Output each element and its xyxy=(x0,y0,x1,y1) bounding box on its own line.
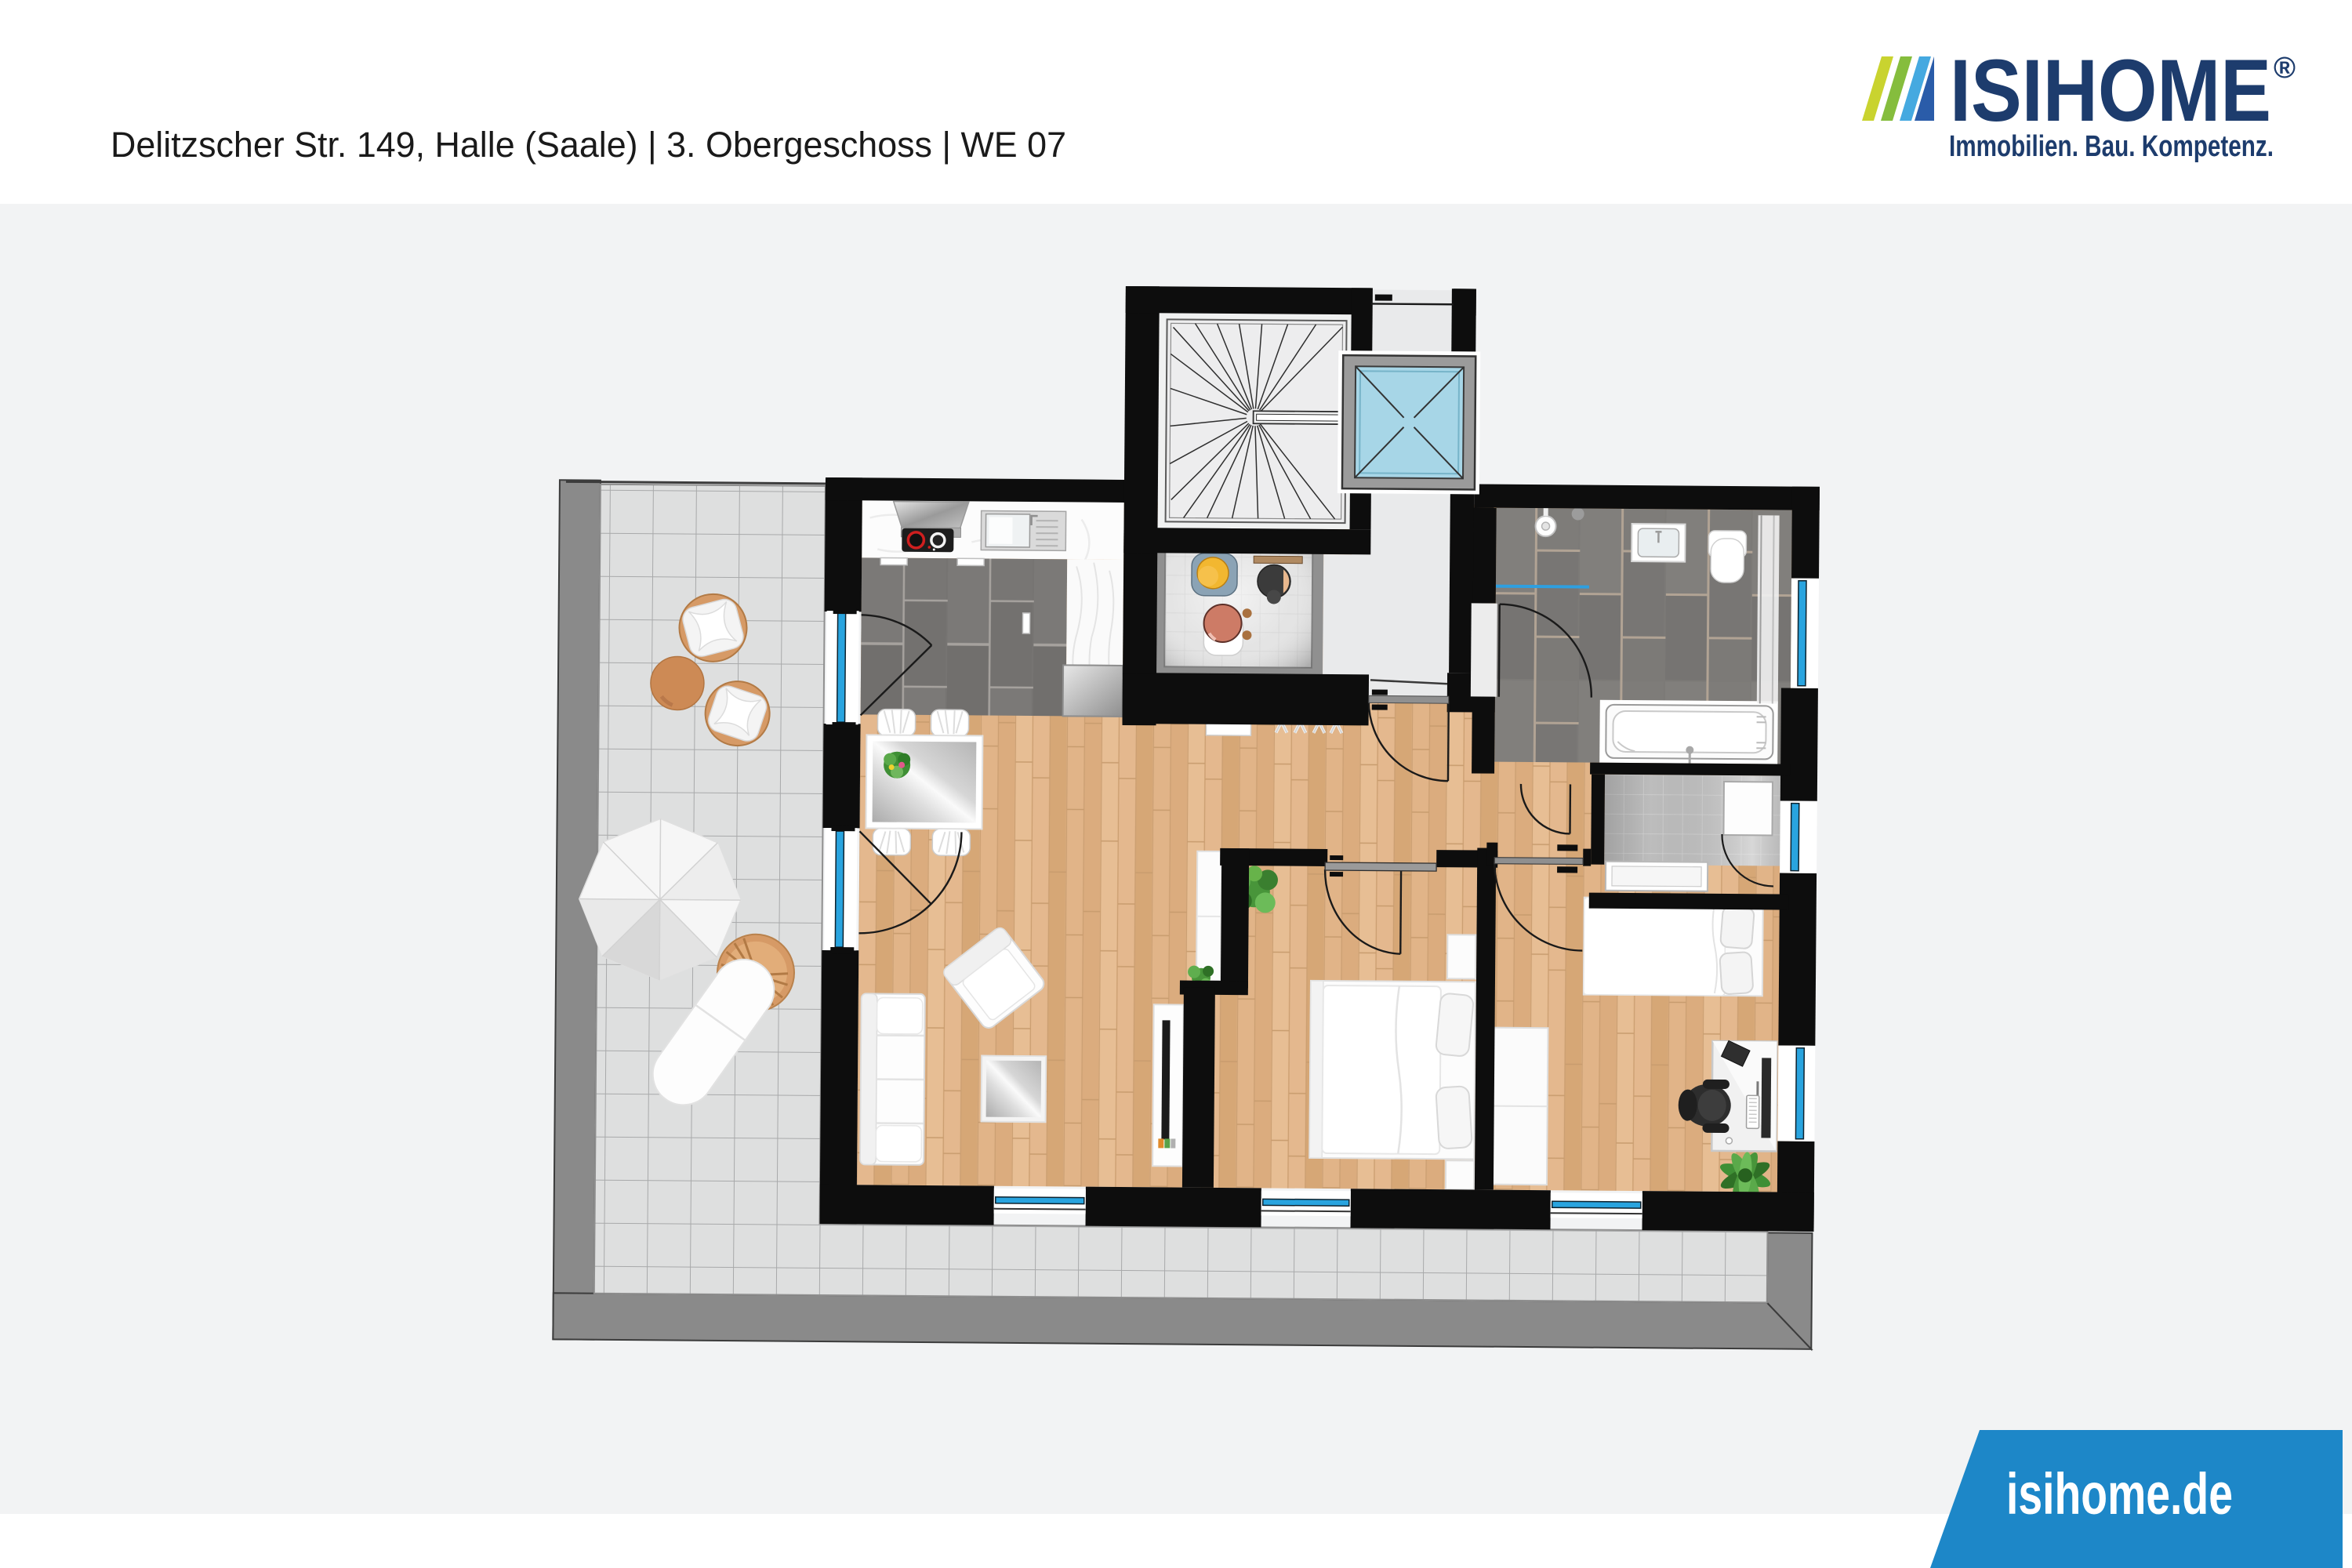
svg-text:isihome.de: isihome.de xyxy=(2006,1461,2233,1526)
svg-text:Immobilien. Bau. Kompetenz.: Immobilien. Bau. Kompetenz. xyxy=(1949,130,2274,163)
svg-text:®: ® xyxy=(2274,52,2296,85)
svg-text:Delitzscher Str. 149, Halle (S: Delitzscher Str. 149, Halle (Saale) | 3.… xyxy=(111,125,1066,165)
svg-text:ISIHOME: ISIHOME xyxy=(1950,42,2271,140)
